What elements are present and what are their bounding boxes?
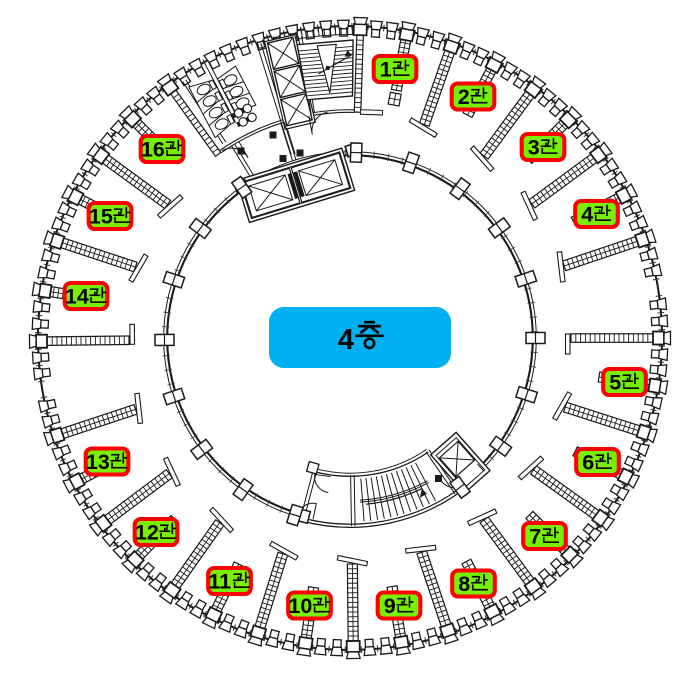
svg-text:4: 4 xyxy=(338,324,354,356)
svg-text:11: 11 xyxy=(208,570,231,594)
svg-text:8: 8 xyxy=(458,572,470,596)
svg-text:10: 10 xyxy=(288,594,312,618)
svg-text:2: 2 xyxy=(458,85,470,109)
svg-text:4: 4 xyxy=(581,203,593,227)
svg-text:13: 13 xyxy=(86,450,110,474)
svg-text:6: 6 xyxy=(582,451,594,475)
svg-text:7: 7 xyxy=(529,525,541,549)
svg-text:1: 1 xyxy=(380,58,392,82)
svg-text:3: 3 xyxy=(528,136,540,160)
svg-text:12: 12 xyxy=(135,521,159,545)
svg-text:14: 14 xyxy=(65,285,89,309)
svg-text:15: 15 xyxy=(89,205,113,229)
svg-text:5: 5 xyxy=(609,371,621,395)
svg-text:9: 9 xyxy=(384,594,396,618)
svg-text:16: 16 xyxy=(141,138,165,162)
